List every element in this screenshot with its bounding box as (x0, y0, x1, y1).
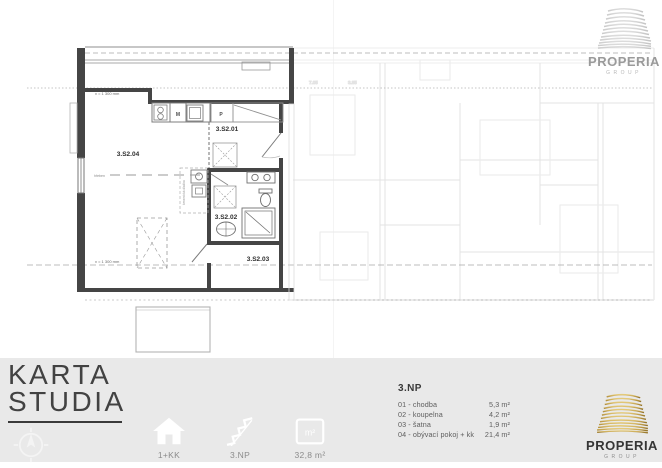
room-area: 1,9 m² (489, 420, 510, 430)
floor-plan-drawing: 7.05 3.85 (0, 0, 662, 360)
room-area: 4,2 m² (489, 410, 510, 420)
bathroom-fixtures (217, 172, 276, 238)
area-icon: m² (294, 416, 326, 446)
room-list-item: 03 - šatna 1,9 m² (398, 420, 510, 430)
room-label-closet: 3.S2.03 (247, 256, 270, 263)
floor-note-label: keramická dlažba (182, 180, 186, 205)
badge-area: m² 32,8 m² (282, 416, 338, 460)
height-annotation-bottom: v = 1 300 mm (95, 259, 120, 264)
badge-layout: 1+KK (141, 416, 197, 460)
room-label-bath: 3.S2.02 (215, 214, 238, 221)
room-area: 21,4 m² (485, 430, 510, 440)
room-name: 01 - chodba (398, 400, 437, 410)
room-name: 03 - šatna (398, 420, 431, 430)
room-area: 5,3 m² (489, 400, 510, 410)
room-label-hall: 3.S2.01 (216, 126, 239, 133)
dormer-outline (136, 307, 210, 352)
room-list-item: 02 - koupelna 4,2 m² (398, 410, 510, 420)
badge-layout-label: 1+KK (141, 450, 197, 460)
height-annotation-top: v = 1 300 mm (95, 91, 120, 96)
title-underline (8, 421, 122, 423)
logo-wordmark: PROPERIA (584, 55, 662, 68)
properia-logo-mark-gold (593, 392, 651, 438)
appliance-p-label: P (219, 112, 223, 118)
stairs-icon (221, 416, 259, 446)
room-label-living: 3.S2.04 (117, 151, 140, 158)
living-wardrobe (137, 218, 167, 268)
roof-dashed-lines (27, 47, 652, 300)
info-bar: KARTA STUDIA 1+KK 3.NP (0, 358, 662, 462)
header-logo: PROPERIA GROUP (584, 6, 662, 76)
house-icon (151, 416, 187, 446)
floor-heading: 3.NP (398, 383, 510, 394)
room-list: 01 - chodba 5,3 m² 02 - koupelna 4,2 m² … (398, 400, 510, 440)
room-list-item: 04 - obývací pokoj + kk 21,4 m² (398, 430, 510, 440)
kitchen-counter (152, 103, 210, 122)
ridge-label: hřeben (94, 174, 105, 178)
faded-room-label: 7.05 (309, 80, 318, 85)
faded-room-label: 3.85 (348, 80, 357, 85)
room-details: 3.NP 01 - chodba 5,3 m² 02 - koupelna 4,… (398, 383, 510, 440)
compass-icon (12, 426, 50, 464)
appliance-m-label: M (176, 112, 180, 118)
badge-floor: 3.NP (212, 416, 268, 460)
room-list-item: 01 - chodba 5,3 m² (398, 400, 510, 410)
properia-logo-mark-gray (595, 6, 653, 54)
card-title: KARTA STUDIA (8, 361, 126, 423)
area-icon-unit: m² (305, 427, 315, 437)
wardrobe-boxes (213, 143, 237, 208)
studio-card-page: 7.05 3.85 (0, 0, 662, 468)
card-title-line1: KARTA (8, 361, 126, 388)
badge-area-label: 32,8 m² (282, 450, 338, 460)
logo-wordmark: PROPERIA (582, 439, 662, 452)
faded-neighbor-plan: 7.05 3.85 (293, 48, 654, 300)
badge-floor-label: 3.NP (212, 450, 268, 460)
logo-subtitle: GROUP (584, 70, 662, 76)
room-name: 04 - obývací pokoj + kk (398, 430, 474, 440)
card-title-line2: STUDIA (8, 388, 126, 415)
logo-subtitle: GROUP (582, 454, 662, 460)
footer-logo: PROPERIA GROUP (582, 392, 662, 460)
room-name: 02 - koupelna (398, 410, 443, 420)
